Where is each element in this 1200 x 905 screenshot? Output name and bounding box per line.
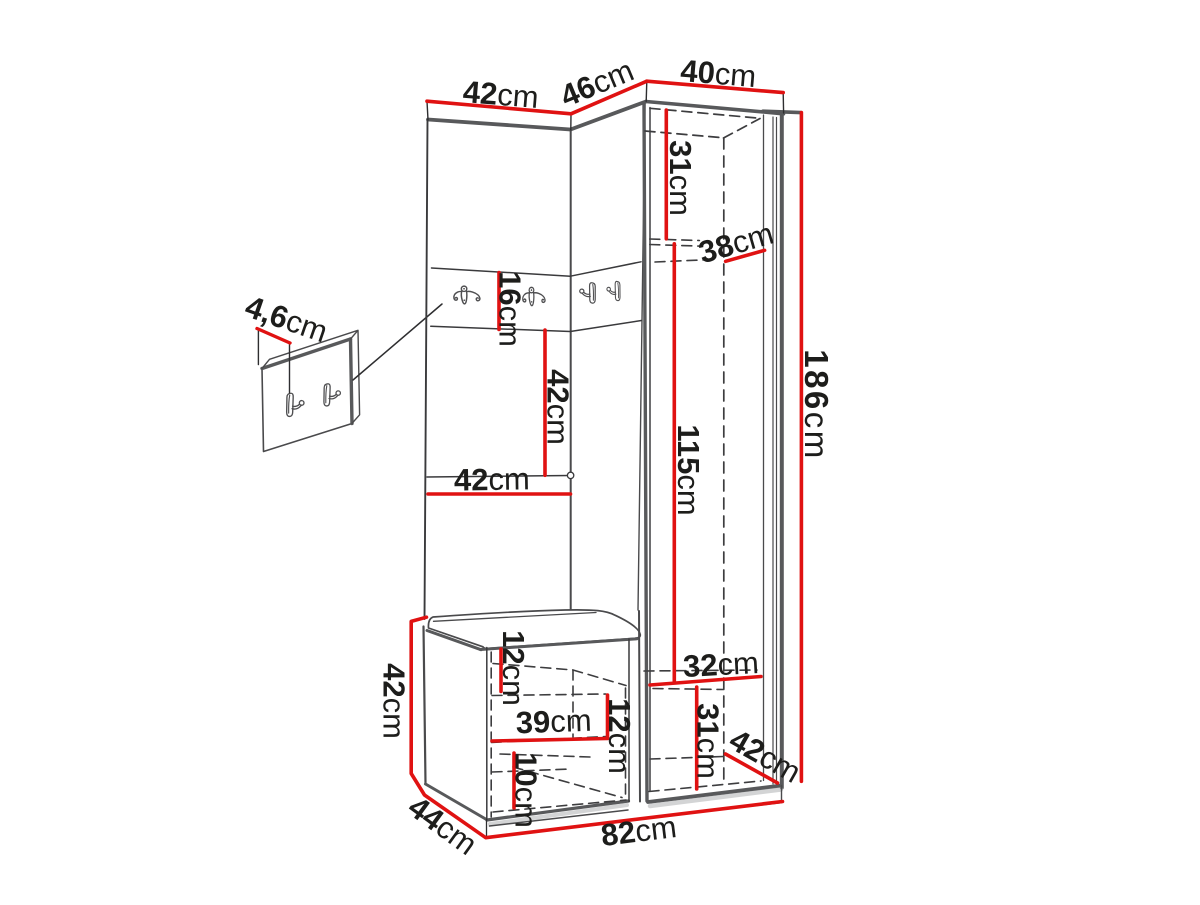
svg-text:12cm: 12cm [602,698,637,774]
svg-text:10cm: 10cm [509,752,544,828]
svg-text:42cm: 42cm [541,369,576,445]
svg-text:40cm: 40cm [679,53,757,94]
svg-text:42cm: 42cm [462,74,540,115]
svg-text:16cm: 16cm [493,271,528,347]
svg-text:186cm: 186cm [798,349,835,461]
svg-text:39cm: 39cm [515,703,592,741]
svg-text:115cm: 115cm [671,424,706,515]
svg-text:31cm: 31cm [663,140,698,216]
svg-text:42cm: 42cm [377,663,412,739]
svg-text:42cm: 42cm [454,461,530,497]
svg-text:31cm: 31cm [691,703,726,779]
svg-text:12cm: 12cm [496,630,531,706]
svg-text:32cm: 32cm [682,645,760,684]
